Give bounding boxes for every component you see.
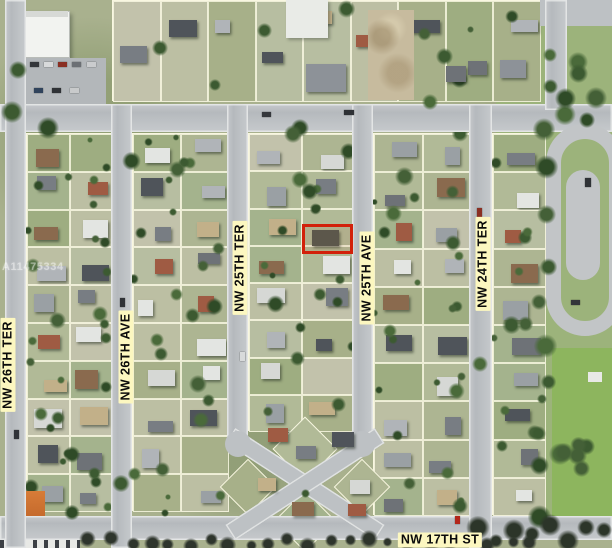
street-labels: NW 26TH TERNW 26TH AVENW 25TH TERNW 25TH…	[0, 0, 612, 548]
aerial-map: NW 26TH TERNW 26TH AVENW 25TH TERNW 25TH…	[0, 0, 612, 548]
street-label-nw-24th-ter: NW 24TH TER	[476, 217, 491, 311]
subject-parcel-highlight	[302, 224, 353, 254]
street-label-nw-25th-ter: NW 25TH TER	[233, 221, 248, 315]
street-label-nw-17th-st: NW 17TH ST	[398, 533, 482, 548]
street-label-nw-26th-ter: NW 26TH TER	[1, 318, 16, 412]
street-label-nw-25th-ave: NW 25TH AVE	[360, 231, 375, 324]
mls-watermark: A11475334	[2, 261, 64, 273]
street-label-nw-26th-ave: NW 26TH AVE	[119, 310, 134, 403]
